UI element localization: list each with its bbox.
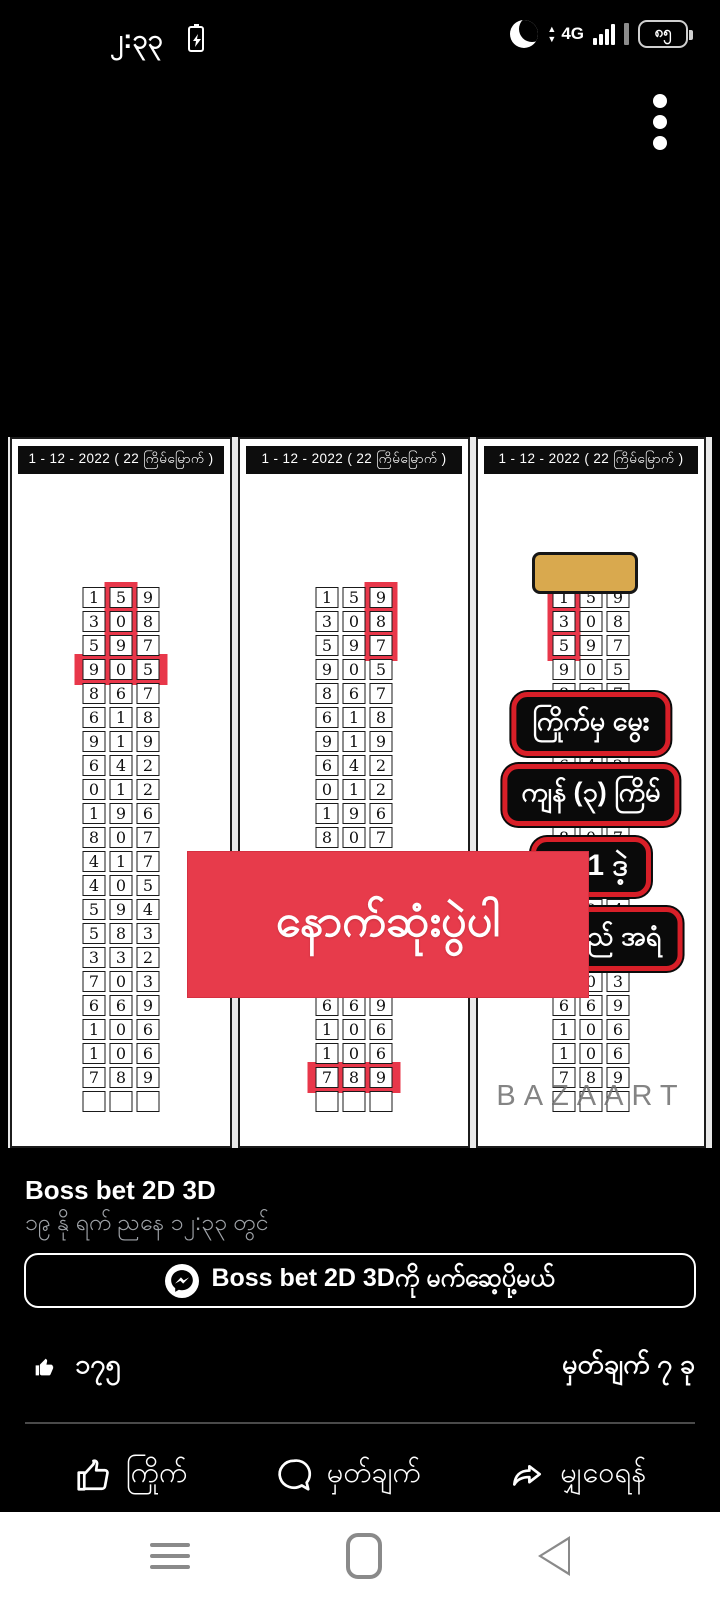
number-cell: 1 — [110, 707, 133, 728]
more-options-icon[interactable] — [648, 94, 672, 150]
number-cell: 1 — [316, 1019, 339, 1040]
grid-row: 196 — [316, 803, 393, 827]
number-cell: 9 — [316, 731, 339, 752]
number-cell: 7 — [370, 827, 393, 848]
number-cell: 5 — [110, 587, 133, 608]
post-timestamp: ၁၉ နို ရက် ညနေ ၁၂:၃၃ တွင် — [25, 1208, 269, 1242]
number-cell: 0 — [343, 659, 366, 680]
number-cell: 8 — [607, 611, 630, 632]
grid-row: 919 — [316, 731, 393, 755]
status-bar: ၂:၃၃ ▲▼ 4G ၈၅ — [0, 0, 720, 70]
number-cell: 9 — [137, 587, 160, 608]
back-icon[interactable] — [538, 1536, 570, 1576]
signal-bars-icon — [593, 23, 615, 45]
number-cell: 4 — [137, 899, 160, 920]
number-cell: 0 — [110, 971, 133, 992]
grid-row: 106 — [83, 1043, 160, 1067]
number-cell: 9 — [110, 803, 133, 824]
number-cell: 0 — [110, 1043, 133, 1064]
number-cell: 3 — [83, 611, 106, 632]
number-cell: 9 — [316, 659, 339, 680]
grid-row: 196 — [83, 803, 160, 827]
charging-battery-icon — [188, 26, 204, 52]
number-cell: 9 — [137, 995, 160, 1016]
grid-row: 642 — [83, 755, 160, 779]
number-cell: 6 — [83, 707, 106, 728]
grid-row: 919 — [83, 731, 160, 755]
number-cell: 2 — [370, 779, 393, 800]
number-cell: 1 — [110, 779, 133, 800]
grid-row: 807 — [83, 827, 160, 851]
number-cell: 8 — [110, 1067, 133, 1088]
number-cell: 0 — [580, 1019, 603, 1040]
grid-row: 905 — [553, 659, 630, 683]
grid-row: 867 — [316, 683, 393, 707]
network-type-label: 4G — [561, 24, 584, 44]
clock: ၂:၃၃ — [110, 22, 163, 62]
home-icon[interactable] — [346, 1533, 382, 1579]
number-cell: 1 — [316, 1043, 339, 1064]
messenger-cta-label: Boss bet 2D 3Dကို မက်ဆေ့ပို့မယ် — [211, 1262, 554, 1299]
number-cell: 9 — [110, 635, 133, 656]
grid-row: 669 — [316, 995, 393, 1019]
number-cell: 8 — [316, 683, 339, 704]
grid-row: 308 — [83, 611, 160, 635]
share-button[interactable]: မျှဝေရန် — [508, 1454, 646, 1497]
number-cell: 7 — [316, 1067, 339, 1088]
number-cell: 5 — [607, 659, 630, 680]
number-cell — [137, 1091, 160, 1112]
number-cell: 6 — [110, 995, 133, 1016]
number-cell: 7 — [83, 1067, 106, 1088]
messenger-icon — [165, 1264, 199, 1298]
thumbs-up-icon — [74, 1456, 112, 1494]
number-cell: 0 — [343, 1043, 366, 1064]
number-cell: 6 — [316, 995, 339, 1016]
draw-date-header: 1 - 12 - 2022 ( 22 ကြိမ်မြောက် ) — [484, 446, 698, 474]
grid-row: 159 — [316, 587, 393, 611]
number-cell: 9 — [83, 731, 106, 752]
bolt-icon — [193, 34, 201, 50]
number-cell: 9 — [607, 995, 630, 1016]
grid-row: 669 — [553, 995, 630, 1019]
grid-row: 594 — [83, 899, 160, 923]
number-cell: 7 — [137, 683, 160, 704]
grid-row: 905 — [83, 659, 160, 683]
number-cell: 8 — [316, 827, 339, 848]
grid-row: 405 — [83, 875, 160, 899]
number-cell: 6 — [83, 755, 106, 776]
grid-row: 807 — [316, 827, 393, 851]
messenger-cta-button[interactable]: Boss bet 2D 3Dကို မက်ဆေ့ပို့မယ် — [24, 1253, 696, 1308]
grid-panel-center: 1 - 12 - 2022 ( 22 ကြိမ်မြောက် ) 1593085… — [238, 437, 470, 1148]
grid-row: 159 — [83, 587, 160, 611]
number-cell: 3 — [553, 611, 576, 632]
number-cell: 9 — [137, 731, 160, 752]
number-cell: 3 — [316, 611, 339, 632]
banner-text: နောက်ဆုံးပွဲပါ — [276, 892, 500, 958]
number-cell: 9 — [343, 803, 366, 824]
number-cell — [83, 1091, 106, 1112]
number-cell: 6 — [370, 803, 393, 824]
number-cell: 2 — [137, 947, 160, 968]
number-cell: 6 — [137, 1043, 160, 1064]
number-cell: 7 — [370, 635, 393, 656]
number-cell: 6 — [607, 1019, 630, 1040]
grid-row: 012 — [83, 779, 160, 803]
number-cell: 0 — [343, 1019, 366, 1040]
action-bar: ကြိုက် မှတ်ချက် မျှဝေရန် — [0, 1438, 720, 1512]
number-cell: 5 — [343, 587, 366, 608]
gold-tab — [532, 552, 638, 594]
number-cell: 3 — [83, 947, 106, 968]
like-count-group[interactable]: ၁၇၅ — [25, 1347, 121, 1387]
grid-row: 308 — [316, 611, 393, 635]
grid-row — [83, 1091, 160, 1115]
number-cell: 5 — [83, 635, 106, 656]
number-cell: 8 — [110, 923, 133, 944]
like-button[interactable]: ကြိုက် — [74, 1454, 188, 1497]
number-cell: 7 — [137, 635, 160, 656]
number-cell: 1 — [316, 587, 339, 608]
number-cell: 7 — [137, 827, 160, 848]
signal-bar2-icon — [624, 23, 629, 45]
data-transfer-icon: ▲▼ — [547, 25, 556, 43]
comment-button[interactable]: မှတ်ချက် — [275, 1454, 421, 1497]
number-cell: 0 — [580, 659, 603, 680]
number-cell: 0 — [110, 659, 133, 680]
grid-row: 597 — [316, 635, 393, 659]
grid-row: 597 — [553, 635, 630, 659]
grid-row: 618 — [83, 707, 160, 731]
number-cell: 3 — [607, 971, 630, 992]
bazaart-watermark: BAZAART — [496, 1080, 685, 1113]
grid-panel-left: 1 - 12 - 2022 ( 22 ကြိမ်မြောက် ) 1593085… — [10, 437, 232, 1148]
badge-luck: ကြိုက်မှ မွေး — [511, 692, 670, 756]
number-cell: 0 — [343, 827, 366, 848]
number-cell: 6 — [83, 995, 106, 1016]
number-cell: 6 — [110, 683, 133, 704]
number-cell: 7 — [607, 635, 630, 656]
number-cell: 8 — [370, 611, 393, 632]
number-cell: 8 — [83, 683, 106, 704]
divider — [25, 1422, 695, 1424]
number-cell: 6 — [316, 755, 339, 776]
number-cell: 9 — [83, 659, 106, 680]
grid-row: 789 — [316, 1067, 393, 1091]
number-cell: 7 — [137, 851, 160, 872]
number-cell: 7 — [83, 971, 106, 992]
like-count: ၁၇၅ — [75, 1347, 121, 1387]
grid-row — [316, 1091, 393, 1115]
number-cell: 1 — [553, 1043, 576, 1064]
grid-row: 905 — [316, 659, 393, 683]
number-grid: 1593085979058676189196420121968074174055… — [316, 587, 393, 1115]
grid-row: 618 — [316, 707, 393, 731]
grid-row: 106 — [316, 1019, 393, 1043]
number-cell: 5 — [83, 923, 106, 944]
number-cell: 1 — [343, 731, 366, 752]
number-cell: 9 — [580, 635, 603, 656]
like-reaction-icon — [25, 1348, 63, 1386]
number-cell: 6 — [580, 995, 603, 1016]
grid-row: 308 — [553, 611, 630, 635]
number-cell: 4 — [83, 875, 106, 896]
number-cell: 4 — [110, 755, 133, 776]
number-cell: 0 — [580, 1043, 603, 1064]
grid-row: 669 — [83, 995, 160, 1019]
number-cell: 9 — [370, 587, 393, 608]
battery-percent: ၈၅ — [654, 23, 671, 45]
number-cell: 0 — [110, 1019, 133, 1040]
number-cell: 9 — [370, 995, 393, 1016]
grid-row: 789 — [83, 1067, 160, 1091]
grid-row: 597 — [83, 635, 160, 659]
number-cell: 5 — [553, 635, 576, 656]
number-grid: 1593085979058676189196420121968074174055… — [83, 587, 160, 1115]
number-cell: 1 — [83, 1043, 106, 1064]
battery-indicator: ၈၅ — [638, 20, 688, 48]
number-cell: 6 — [343, 995, 366, 1016]
number-cell: 9 — [343, 635, 366, 656]
recents-menu-icon[interactable] — [150, 1543, 190, 1569]
number-cell — [370, 1091, 393, 1112]
number-cell: 0 — [580, 611, 603, 632]
badge-remaining-draws: ကျန် (၃) ကြိမ် — [502, 764, 679, 826]
number-cell: 1 — [110, 851, 133, 872]
number-cell: 1 — [343, 779, 366, 800]
post-image[interactable]: 1 - 12 - 2022 ( 22 ကြိမ်မြောက် ) 1593085… — [8, 437, 712, 1148]
share-label: မျှဝေရန် — [560, 1454, 646, 1497]
grid-row: 106 — [553, 1043, 630, 1067]
number-cell: 3 — [137, 923, 160, 944]
reactions-row: ၁၇၅ မှတ်ချက် ၇ ခု — [25, 1345, 695, 1389]
grid-row: 703 — [83, 971, 160, 995]
draw-date-header: 1 - 12 - 2022 ( 22 ကြိမ်မြောက် ) — [246, 446, 462, 474]
number-cell: 9 — [110, 899, 133, 920]
number-cell: 2 — [137, 779, 160, 800]
number-cell: 9 — [370, 1067, 393, 1088]
number-cell: 5 — [137, 659, 160, 680]
number-cell: 8 — [343, 1067, 366, 1088]
number-cell: 1 — [553, 1019, 576, 1040]
number-cell: 6 — [137, 1019, 160, 1040]
grid-row: 106 — [316, 1043, 393, 1067]
number-cell: 6 — [370, 1019, 393, 1040]
last-round-banner: နောက်ဆုံးပွဲပါ — [188, 852, 588, 997]
number-cell: 8 — [83, 827, 106, 848]
number-cell: 1 — [83, 1019, 106, 1040]
like-label: ကြိုက် — [126, 1454, 188, 1497]
number-cell: 1 — [110, 731, 133, 752]
grid-row: 332 — [83, 947, 160, 971]
number-cell — [316, 1091, 339, 1112]
number-cell: 1 — [83, 587, 106, 608]
grid-row: 867 — [83, 683, 160, 707]
android-nav-bar — [0, 1512, 720, 1600]
number-cell: 5 — [137, 875, 160, 896]
number-cell: 2 — [137, 755, 160, 776]
number-cell: 8 — [370, 707, 393, 728]
number-cell: 6 — [343, 683, 366, 704]
number-cell: 6 — [137, 803, 160, 824]
number-cell: 6 — [370, 1043, 393, 1064]
night-mode-icon — [510, 20, 538, 48]
number-cell: 0 — [110, 827, 133, 848]
grid-row: 642 — [316, 755, 393, 779]
status-icons: ▲▼ 4G ၈၅ — [510, 20, 688, 48]
comment-count[interactable]: မှတ်ချက် ၇ ခု — [562, 1347, 695, 1387]
number-cell: 0 — [83, 779, 106, 800]
number-cell: 0 — [110, 875, 133, 896]
number-cell: 0 — [110, 611, 133, 632]
number-cell: 8 — [137, 611, 160, 632]
number-cell: 5 — [370, 659, 393, 680]
number-cell: 9 — [553, 659, 576, 680]
grid-row: 106 — [83, 1019, 160, 1043]
number-cell: 9 — [137, 1067, 160, 1088]
share-icon — [508, 1456, 546, 1494]
number-cell: 4 — [83, 851, 106, 872]
grid-row: 012 — [316, 779, 393, 803]
number-cell: 6 — [316, 707, 339, 728]
number-cell: 2 — [370, 755, 393, 776]
number-cell: 3 — [137, 971, 160, 992]
number-cell: 1 — [343, 707, 366, 728]
number-cell: 9 — [370, 731, 393, 752]
number-cell: 1 — [83, 803, 106, 824]
number-cell: 6 — [607, 1043, 630, 1064]
number-cell: 3 — [110, 947, 133, 968]
number-cell: 5 — [316, 635, 339, 656]
comment-label: မှတ်ချက် — [327, 1454, 421, 1497]
number-cell: 5 — [83, 899, 106, 920]
number-cell — [110, 1091, 133, 1112]
number-cell: 0 — [316, 779, 339, 800]
grid-row: 106 — [553, 1019, 630, 1043]
number-cell: 8 — [137, 707, 160, 728]
number-cell: 4 — [343, 755, 366, 776]
screen: ၂:၃၃ ▲▼ 4G ၈၅ 1 - 12 - 2022 ( 22 ကြိမ်မြ… — [0, 0, 720, 1600]
number-cell: 0 — [343, 611, 366, 632]
grid-panel-right: 1 - 12 - 2022 ( 22 ကြိမ်မြောက် ) 1593085… — [476, 437, 706, 1148]
grid-row: 583 — [83, 923, 160, 947]
number-cell: 7 — [370, 683, 393, 704]
number-cell: 1 — [316, 803, 339, 824]
number-cell — [343, 1091, 366, 1112]
grid-row: 417 — [83, 851, 160, 875]
page-name[interactable]: Boss bet 2D 3D — [25, 1175, 216, 1206]
number-cell: 6 — [553, 995, 576, 1016]
comment-icon — [275, 1456, 313, 1494]
draw-date-header: 1 - 12 - 2022 ( 22 ကြိမ်မြောက် ) — [18, 446, 224, 474]
